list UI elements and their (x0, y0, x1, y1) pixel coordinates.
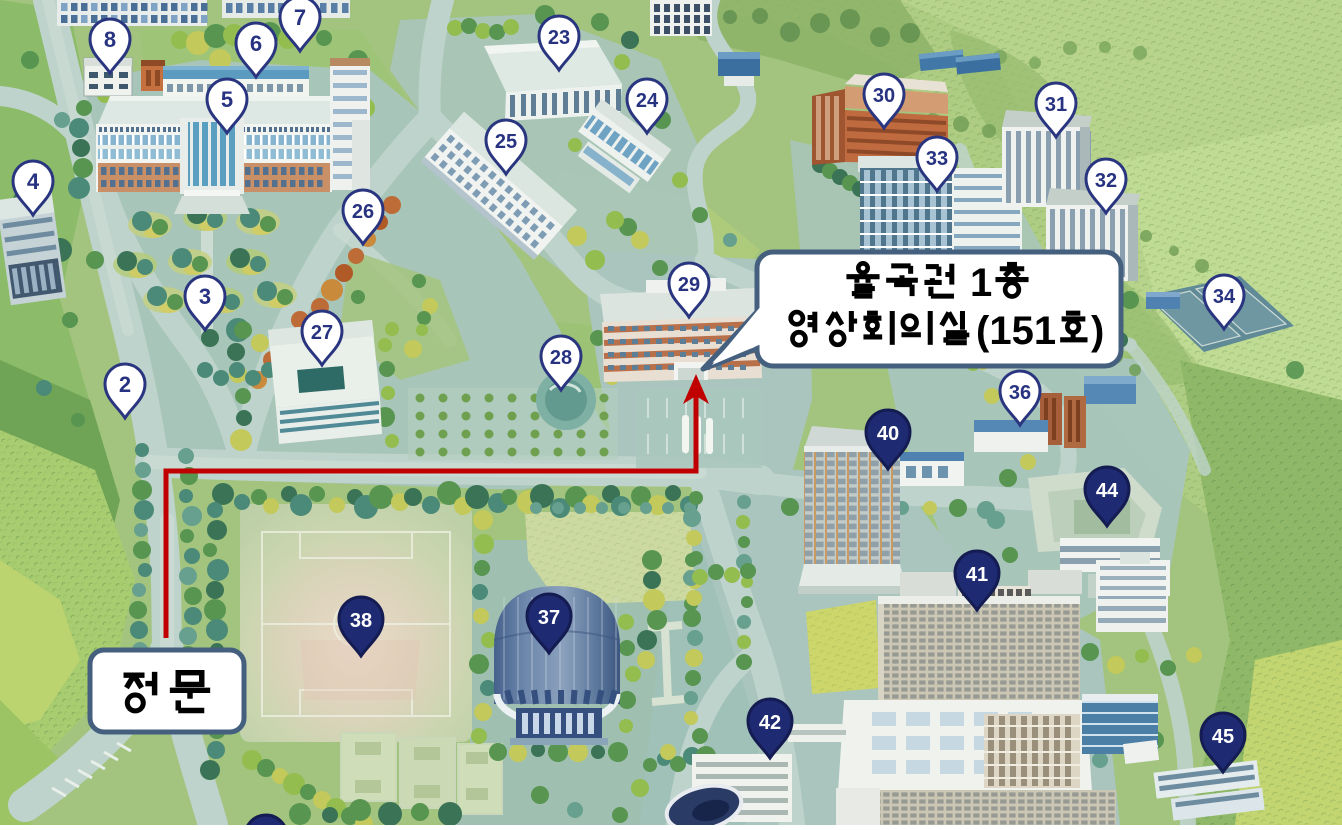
svg-text:28: 28 (550, 347, 572, 369)
svg-text:36: 36 (1009, 382, 1031, 404)
svg-text:33: 33 (926, 148, 948, 170)
svg-text:37: 37 (538, 607, 560, 629)
svg-text:): ) (1091, 309, 1104, 353)
svg-text:38: 38 (350, 610, 372, 632)
svg-text:29: 29 (678, 274, 700, 296)
svg-text:44: 44 (1096, 480, 1119, 502)
svg-text:41: 41 (966, 564, 988, 586)
svg-text:8: 8 (104, 27, 116, 52)
svg-text:3: 3 (199, 284, 211, 309)
svg-text:32: 32 (1095, 170, 1117, 192)
svg-text:(151: (151 (976, 309, 1056, 353)
svg-text:4: 4 (27, 169, 40, 194)
svg-text:24: 24 (636, 90, 659, 112)
svg-text:45: 45 (1212, 726, 1234, 748)
svg-text:23: 23 (548, 27, 570, 49)
svg-text:25: 25 (495, 131, 517, 153)
svg-text:34: 34 (1213, 286, 1236, 308)
svg-text:5: 5 (221, 87, 233, 112)
svg-text:7: 7 (294, 5, 306, 30)
svg-text:40: 40 (877, 423, 899, 445)
svg-text:42: 42 (759, 712, 781, 734)
svg-text:30: 30 (873, 85, 895, 107)
svg-text:1: 1 (970, 261, 992, 305)
svg-text:31: 31 (1045, 94, 1067, 116)
svg-text:27: 27 (311, 322, 333, 344)
svg-text:6: 6 (250, 31, 262, 56)
svg-text:26: 26 (352, 201, 374, 223)
svg-text:2: 2 (119, 372, 131, 397)
